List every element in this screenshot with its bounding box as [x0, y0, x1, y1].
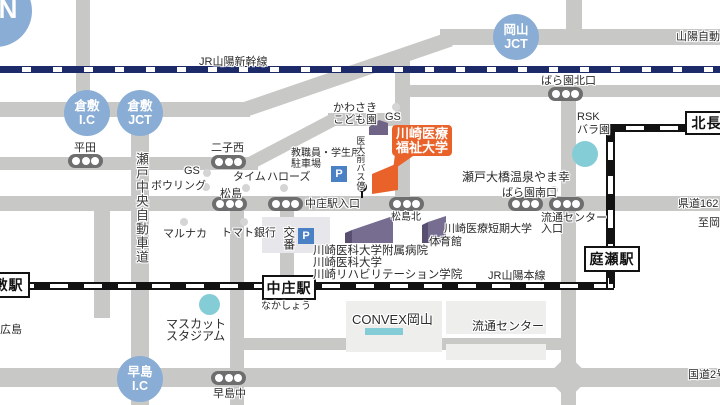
label-bowling: ボウリング: [151, 180, 206, 193]
label-convex: CONVEX岡山: [352, 313, 433, 328]
label-idaimae-bus: 医大前バス停: [355, 136, 365, 190]
kurashiki-ic: 倉敷 I.C: [64, 90, 110, 136]
gs-left-dot: [203, 169, 211, 177]
idaimae-busstop-pole: [361, 191, 363, 198]
label-times: タイム: [233, 171, 266, 184]
label-hallows: ハローズ: [267, 171, 310, 184]
route2-interchange-ramps: [545, 354, 590, 399]
convex-marker: [365, 328, 403, 335]
kurashiki-ic-label: 倉敷: [74, 99, 99, 113]
access-map: 倉敷駅 中庄駅 庭瀬駅 北長瀬 倉敷 I.C 倉敷 JCT 岡山 JCT 早島 …: [0, 0, 720, 405]
niwase-station-connector: [609, 270, 615, 284]
parking-icon-hospital: P: [298, 228, 314, 244]
label-staff-parking-1: 教職員・学生用: [291, 148, 361, 160]
okayama-jct-label: 岡山: [503, 23, 528, 37]
busstop-futagonishi: [211, 155, 246, 169]
label-junior-college: 川崎医療短期大学: [444, 223, 532, 236]
label-bus-ryutsu-iriguchi-2: 入口: [541, 223, 563, 236]
okayama-jct: 岡山 JCT: [493, 14, 539, 60]
road-muscat-stub: [94, 197, 110, 318]
label-bus-nakashoeki-iriguchi: 中庄駅入口: [305, 198, 360, 211]
busstop-hirata: [68, 154, 103, 168]
busstop-baraen-kitaguchi: [548, 87, 583, 101]
university-callout: 川崎医療 福祉大学: [392, 125, 452, 156]
label-rehab-college: 川崎リハビリテーション学院: [313, 269, 462, 282]
label-nakasho-kana: なかしょう: [261, 301, 311, 313]
label-marunaka: マルナカ: [163, 228, 207, 241]
label-bus-baraen-kitaguchi: ばら園北口: [541, 75, 596, 88]
label-gym: 体育館: [429, 236, 462, 249]
kurashiki-jct: 倉敷 JCT: [117, 90, 163, 136]
label-yamako-onsen: 瀬戸大橋温泉やま幸: [462, 171, 570, 185]
busstop-nakashoeki-iriguchi: [268, 197, 303, 211]
label-koban: 交番: [281, 226, 295, 250]
station-nakasho: 中庄駅: [262, 275, 316, 300]
label-gs-left: GS: [184, 165, 200, 178]
hayashima-ic: 早島 I.C: [117, 356, 163, 402]
label-sanyo-line: JR山陽本線: [488, 270, 545, 283]
label-kodomoen-1: かわさき: [333, 102, 377, 115]
label-bus-hirata: 平田: [74, 142, 96, 155]
busstop-matsushima-kita: [389, 197, 424, 211]
station-kurashiki: 倉敷駅: [0, 272, 30, 298]
label-tomato-bank: トマト銀行: [221, 227, 276, 240]
times-dot: [242, 184, 250, 192]
label-muscat-2: スタジアム: [166, 330, 225, 344]
marunaka-dot: [180, 218, 188, 226]
label-bus-futagonishi: 二子西: [211, 142, 244, 155]
hallows-dot: [280, 184, 288, 192]
label-ryutsu-center: 流通センター: [472, 320, 544, 334]
hospital-building: [345, 215, 395, 245]
label-gs-top: GS: [385, 111, 401, 124]
label-kendo162: 県道162: [678, 198, 718, 211]
ryutsu-block-lower: [446, 344, 546, 360]
label-to-okayama: 至岡山: [698, 217, 720, 230]
road-okayama-expwy-stub: [566, 0, 582, 34]
label-staff-parking-2: 駐車場: [291, 159, 321, 171]
label-bus-matsushima-kita: 松島北: [391, 212, 421, 224]
label-route2: 国道2号: [688, 369, 720, 382]
road-route2: [0, 368, 720, 387]
university-callout-line1: 川崎医療: [396, 127, 448, 141]
label-seto-chuo-expwy: 瀬戸中央自動車道: [133, 152, 148, 264]
label-bus-matsushima: 松島: [220, 188, 242, 201]
station-kitanagase: 北長瀬: [685, 111, 720, 135]
tomato-bank-dot: [240, 218, 248, 226]
kurashiki-jct-label: 倉敷: [127, 99, 152, 113]
label-hiroshima: 広島: [0, 324, 22, 337]
busstop-hayashima-naka: [211, 371, 246, 385]
label-sanyo-expwy: 山陽自動車道: [676, 31, 720, 44]
label-rsk-2: バラ園: [577, 124, 610, 137]
label-bus-baraen-minamiguchi: ばら園南口: [502, 187, 557, 200]
station-niwase: 庭瀬駅: [584, 246, 640, 272]
label-rsk-1: RSK: [577, 111, 600, 124]
label-bus-hayashima-naka: 早島中: [213, 388, 246, 401]
gs-top-dot: [392, 103, 400, 111]
compass-north-icon: N: [0, 0, 28, 25]
muscat-stadium-marker: [199, 294, 220, 315]
rsk-rose-garden-marker: [572, 141, 598, 167]
label-kodomoen-2: こども園: [333, 114, 377, 127]
shinkansen-line: [0, 66, 720, 73]
university-callout-line2: 福祉大学: [396, 141, 448, 155]
label-shinkansen: JR山陽新幹線: [199, 56, 267, 69]
parking-icon-staff: P: [331, 166, 347, 182]
hayashima-ic-label: 早島: [127, 365, 152, 379]
